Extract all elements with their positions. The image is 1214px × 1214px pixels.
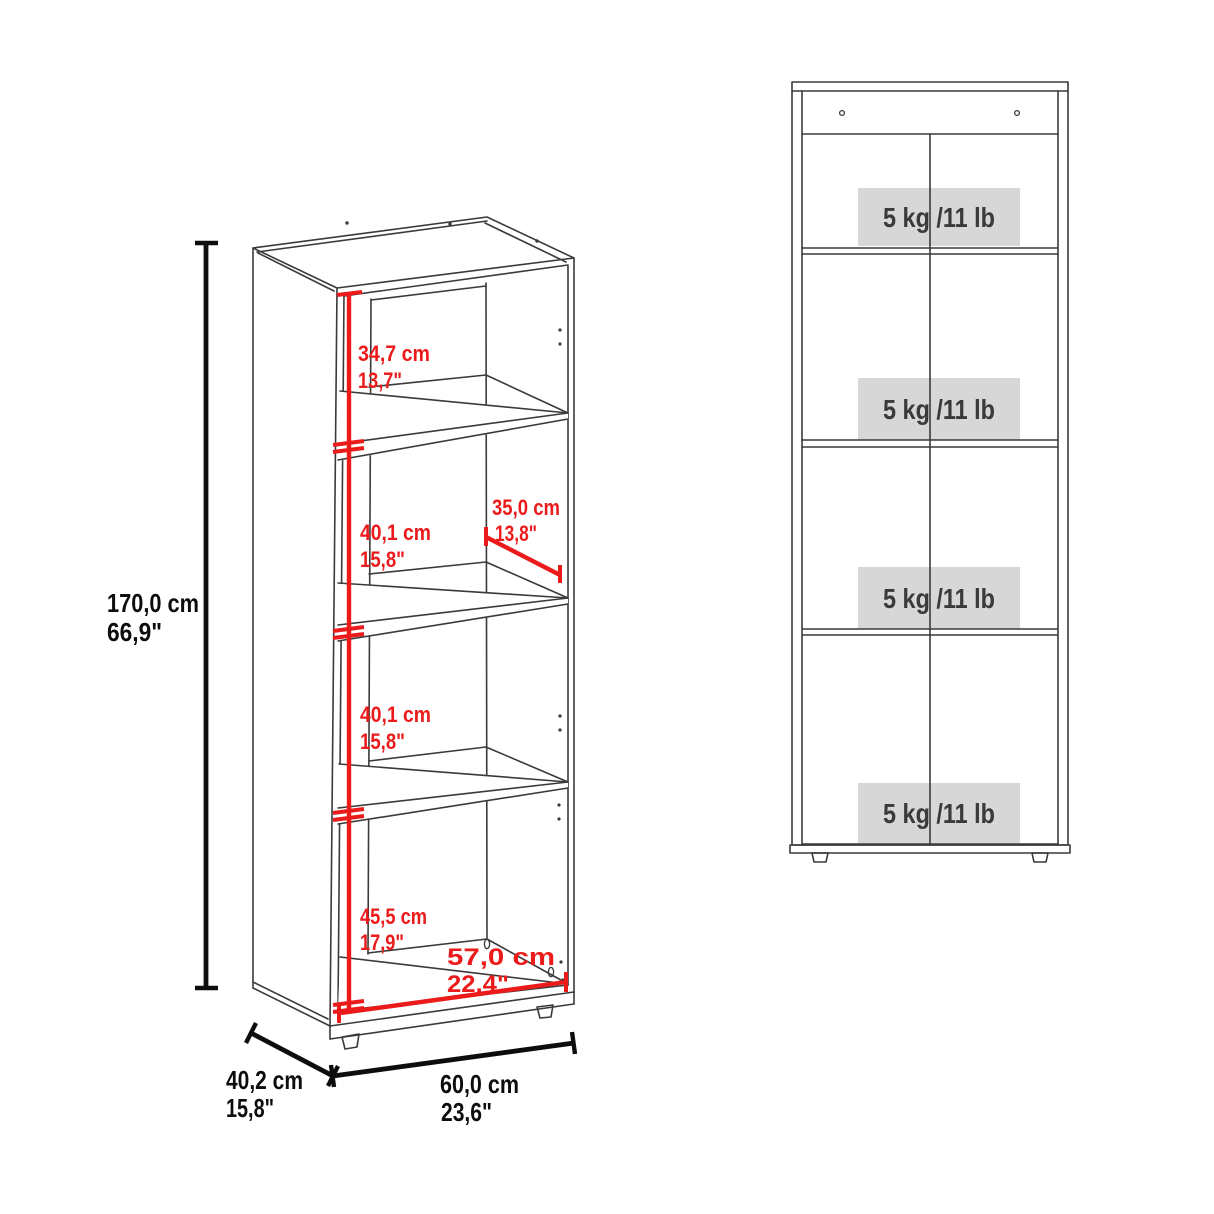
dim-compartment-4-cm: 45,5 cm — [360, 904, 427, 929]
dim-compartment-3-inch: 15,8" — [360, 729, 405, 754]
front-left-foot — [342, 1034, 359, 1049]
dim-compartment-4-inch: 17,9" — [360, 930, 404, 955]
capacity-label-2: 5 kg /11 lb — [883, 394, 995, 425]
dim-shelf-depth-inch: 13,8" — [495, 521, 537, 546]
header-screw-hole — [840, 111, 845, 116]
capacity-label-3: 5 kg /11 lb — [883, 583, 995, 614]
dim-width-cm: 60,0 cm — [440, 1069, 519, 1099]
dim-compartment-2-inch: 15,8" — [360, 547, 405, 572]
front-view: 5 kg /11 lb 5 kg /11 lb 5 kg /11 lb 5 kg… — [790, 82, 1070, 862]
capacity-label-1: 5 kg /11 lb — [883, 202, 995, 233]
cabinet-front-outline — [790, 82, 1070, 853]
dim-compartment-3-cm: 40,1 cm — [360, 702, 431, 727]
dim-compartment-2-cm: 40,1 cm — [360, 520, 431, 545]
perspective-view: 34,7 cm 13,7" 40,1 cm 15,8" 35,0 cm 13,8… — [107, 217, 575, 1127]
dim-width-inch: 23,6" — [441, 1097, 492, 1127]
top-screw-dot — [345, 221, 348, 224]
dim-inner-width-inch: 22,4" — [447, 971, 509, 998]
dim-compartment-1-inch: 13,7" — [358, 368, 402, 393]
shelf-3 — [338, 747, 568, 824]
dim-shelf-depth-cm: 35,0 cm — [492, 495, 560, 520]
dim-depth-inch: 15,8" — [226, 1093, 274, 1123]
top-screw-dot — [535, 239, 538, 242]
capacity-label-4: 5 kg /11 lb — [883, 798, 995, 829]
furniture-dimension-diagram: 34,7 cm 13,7" 40,1 cm 15,8" 35,0 cm 13,8… — [0, 0, 1214, 1214]
diagram-canvas: 34,7 cm 13,7" 40,1 cm 15,8" 35,0 cm 13,8… — [0, 0, 1214, 1214]
header-screw-hole — [1015, 111, 1020, 116]
front-view-feet — [812, 853, 1048, 862]
dim-inner-width-cm: 57,0 cm — [447, 944, 555, 971]
top-screw-dot — [448, 222, 451, 225]
dim-compartment-1-cm: 34,7 cm — [358, 341, 430, 366]
shelf-2 — [338, 562, 568, 641]
dim-height-inch: 66,9" — [107, 617, 162, 647]
dim-height-cm: 170,0 cm — [107, 588, 199, 618]
dim-depth-cm: 40,2 cm — [226, 1065, 303, 1095]
